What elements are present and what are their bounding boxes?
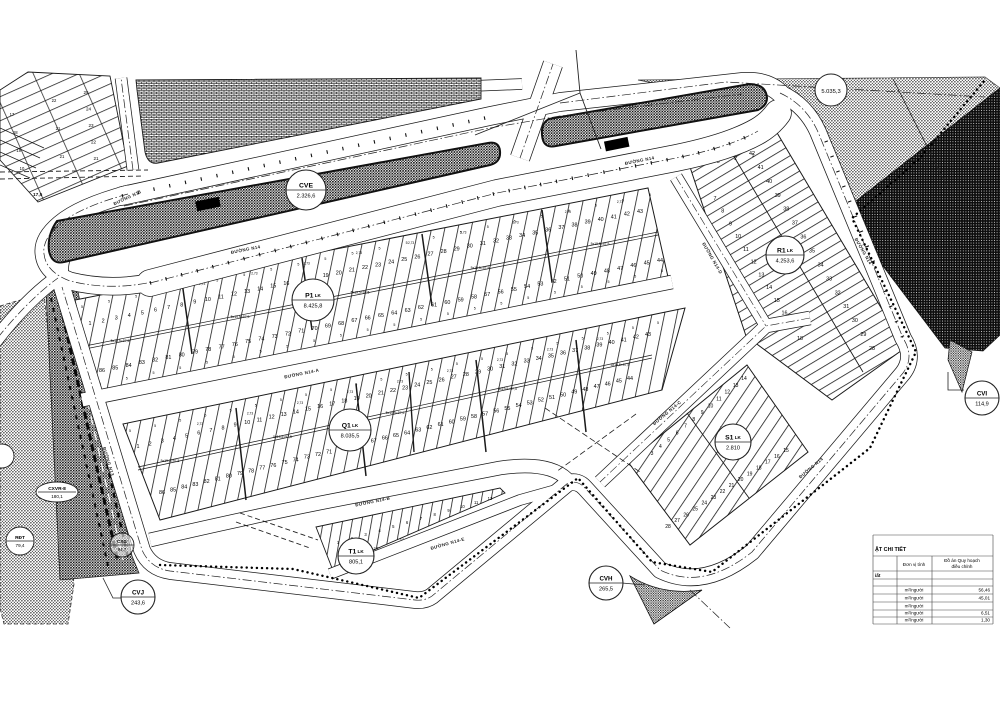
svg-text:RĐT: RĐT (15, 535, 25, 541)
svg-text:37: 37 (792, 221, 798, 227)
svg-text:35: 35 (809, 249, 815, 255)
svg-text:40: 40 (598, 217, 604, 223)
svg-text:22: 22 (52, 98, 57, 103)
svg-text:5: 5 (270, 268, 272, 272)
svg-text:1: 1 (89, 321, 92, 327)
svg-text:ỉất: ỉất (875, 572, 881, 578)
svg-text:5: 5 (447, 312, 449, 316)
svg-text:điều chỉnh: điều chỉnh (952, 563, 973, 569)
svg-text:13: 13 (758, 272, 764, 278)
svg-text:41: 41 (611, 214, 617, 220)
svg-text:9: 9 (729, 222, 732, 228)
svg-text:31: 31 (480, 241, 486, 247)
svg-text:5: 5 (607, 331, 609, 335)
svg-text:51: 51 (564, 276, 570, 282)
svg-text:23: 23 (88, 123, 94, 128)
svg-text:5: 5 (431, 367, 433, 371)
svg-text:71: 71 (326, 449, 332, 455)
svg-text:5: 5 (204, 414, 206, 418)
svg-text:61: 61 (438, 422, 444, 428)
svg-text:2,73: 2,73 (297, 401, 303, 405)
svg-text:45: 45 (616, 379, 622, 385)
svg-text:33: 33 (524, 359, 530, 365)
svg-text:29: 29 (860, 332, 866, 338)
svg-text:73: 73 (272, 334, 278, 340)
svg-text:38: 38 (783, 207, 789, 213)
svg-text:6: 6 (676, 431, 679, 437)
svg-text:5: 5 (632, 326, 634, 330)
svg-text:12: 12 (725, 390, 731, 396)
svg-text:20: 20 (366, 393, 372, 399)
svg-text:5: 5 (233, 355, 235, 359)
svg-text:2.326,6: 2.326,6 (297, 194, 316, 200)
svg-text:55: 55 (504, 406, 510, 412)
svg-text:78: 78 (205, 347, 211, 353)
svg-text:13: 13 (733, 383, 739, 389)
svg-text:5: 5 (154, 424, 156, 428)
svg-text:53: 53 (537, 282, 543, 288)
svg-text:5: 5 (582, 336, 584, 340)
svg-text:44: 44 (627, 376, 633, 382)
svg-text:29: 29 (454, 246, 460, 252)
svg-text:5: 5 (556, 342, 558, 346)
svg-text:5: 5 (634, 274, 636, 278)
svg-text:2: 2 (734, 156, 737, 162)
svg-text:19: 19 (323, 273, 329, 279)
svg-text:28: 28 (869, 346, 875, 352)
svg-text:2,73: 2,73 (547, 348, 553, 352)
svg-text:5: 5 (129, 429, 131, 433)
svg-text:15: 15 (783, 448, 789, 454)
svg-text:11: 11 (218, 294, 224, 300)
svg-text:5: 5 (380, 378, 382, 382)
svg-text:24: 24 (86, 107, 92, 112)
svg-text:2,73: 2,73 (597, 337, 603, 341)
svg-text:43: 43 (637, 209, 643, 215)
svg-text:10: 10 (205, 297, 211, 303)
svg-text:14: 14 (293, 409, 299, 415)
svg-text:16: 16 (283, 281, 289, 287)
svg-text:16: 16 (317, 404, 323, 410)
svg-text:75: 75 (282, 460, 288, 466)
svg-text:10: 10 (708, 403, 714, 409)
svg-text:23: 23 (375, 262, 381, 268)
svg-text:32: 32 (835, 290, 841, 296)
svg-text:2,73: 2,73 (460, 231, 466, 235)
svg-text:50: 50 (560, 392, 566, 398)
svg-text:5: 5 (657, 321, 659, 325)
svg-text:CXG: CXG (117, 539, 127, 544)
svg-text:5x19,5=97,5: 5x19,5=97,5 (161, 459, 180, 463)
svg-text:2,73: 2,73 (397, 380, 403, 384)
svg-text:42: 42 (633, 335, 639, 341)
svg-text:5: 5 (554, 291, 556, 295)
svg-text:14: 14 (257, 286, 263, 292)
svg-text:26: 26 (414, 254, 420, 260)
svg-text:12: 12 (231, 292, 237, 298)
svg-text:43: 43 (645, 332, 651, 338)
svg-text:17: 17 (10, 112, 15, 117)
svg-text:5: 5 (527, 296, 529, 300)
svg-text:265,5: 265,5 (599, 587, 613, 593)
svg-text:CXVR-8: CXVR-8 (48, 486, 66, 492)
svg-text:5: 5 (506, 352, 508, 356)
svg-text:62: 62 (426, 425, 432, 431)
svg-text:CVI: CVI (977, 391, 988, 398)
svg-text:5: 5 (135, 294, 137, 298)
svg-text:5x19,5=97,5: 5x19,5=97,5 (231, 315, 250, 319)
svg-text:24: 24 (414, 383, 420, 389)
svg-text:5: 5 (474, 307, 476, 311)
svg-text:14: 14 (741, 376, 747, 382)
svg-text:30: 30 (467, 244, 473, 250)
svg-text:12: 12 (751, 260, 757, 266)
svg-text:79,4: 79,4 (16, 543, 25, 548)
svg-text:10: 10 (244, 420, 250, 426)
svg-text:5: 5 (280, 398, 282, 402)
svg-text:25: 25 (426, 380, 432, 386)
svg-text:114,9: 114,9 (975, 402, 989, 408)
svg-text:7: 7 (684, 424, 687, 430)
svg-text:5: 5 (481, 357, 483, 361)
svg-text:5: 5 (179, 419, 181, 423)
svg-text:46: 46 (630, 263, 636, 269)
svg-text:27: 27 (674, 518, 680, 524)
svg-text:74: 74 (293, 457, 299, 463)
svg-text:5: 5 (313, 339, 315, 343)
svg-text:58: 58 (471, 414, 477, 420)
svg-text:84: 84 (126, 363, 132, 369)
svg-text:5: 5 (255, 403, 257, 407)
svg-text:28: 28 (665, 524, 671, 530)
svg-text:24: 24 (388, 260, 394, 266)
svg-text:5.035,3: 5.035,3 (821, 89, 840, 95)
svg-text:7: 7 (167, 305, 170, 311)
svg-text:25: 25 (401, 257, 407, 263)
svg-text:48: 48 (582, 387, 588, 393)
svg-text:80: 80 (226, 474, 232, 480)
svg-text:26: 26 (683, 512, 689, 518)
svg-text:39: 39 (585, 220, 591, 226)
svg-text:8: 8 (692, 417, 695, 423)
svg-text:7: 7 (209, 428, 212, 434)
svg-text:76: 76 (232, 342, 238, 348)
svg-text:5: 5 (500, 301, 502, 305)
svg-text:36: 36 (545, 228, 551, 234)
svg-text:24: 24 (702, 501, 708, 507)
svg-text:45: 45 (644, 261, 650, 267)
svg-text:5x19,5=97,5: 5x19,5=97,5 (351, 291, 370, 295)
svg-text:18: 18 (797, 336, 803, 342)
svg-text:31: 31 (843, 304, 849, 310)
svg-text:21: 21 (349, 268, 355, 274)
svg-text:25: 25 (692, 507, 698, 513)
svg-text:2,73: 2,73 (497, 358, 503, 362)
svg-text:5: 5 (126, 377, 128, 381)
svg-text:81: 81 (165, 355, 171, 361)
svg-text:4: 4 (128, 313, 131, 319)
svg-text:15: 15 (774, 298, 780, 304)
svg-text:5: 5 (286, 344, 288, 348)
svg-text:5: 5 (667, 437, 670, 443)
svg-text:2,73: 2,73 (565, 210, 571, 214)
svg-text:m²/người: m²/người (905, 611, 924, 616)
svg-text:62: 62 (418, 305, 424, 311)
svg-text:52: 52 (538, 398, 544, 404)
svg-text:Đơn vị tính: Đơn vị tính (903, 562, 926, 567)
svg-text:3: 3 (161, 439, 164, 445)
svg-text:66: 66 (365, 316, 371, 322)
svg-text:5: 5 (153, 371, 155, 375)
svg-text:59: 59 (460, 417, 466, 423)
svg-text:2,73: 2,73 (356, 251, 362, 255)
svg-text:5: 5 (340, 334, 342, 338)
svg-text:60: 60 (444, 300, 450, 306)
svg-text:5: 5 (649, 193, 651, 197)
svg-text:m²/người: m²/người (905, 618, 924, 623)
svg-text:6,51: 6,51 (981, 611, 990, 616)
svg-text:82: 82 (152, 358, 158, 364)
svg-text:3: 3 (115, 316, 118, 322)
svg-text:17,5: 17,5 (33, 192, 43, 198)
svg-text:67: 67 (351, 318, 357, 324)
svg-text:63: 63 (415, 428, 421, 434)
svg-text:4: 4 (173, 436, 176, 442)
svg-text:81: 81 (215, 476, 221, 482)
svg-text:5: 5 (297, 262, 299, 266)
svg-text:39: 39 (775, 193, 781, 199)
svg-text:83: 83 (139, 360, 145, 366)
svg-text:58: 58 (471, 295, 477, 301)
svg-text:28: 28 (463, 372, 469, 378)
svg-text:14: 14 (766, 285, 772, 291)
svg-text:ẬT CHI TIẾT: ẬT CHI TIẾT (875, 546, 907, 553)
svg-text:6: 6 (154, 308, 157, 314)
svg-text:23: 23 (402, 385, 408, 391)
svg-text:38: 38 (572, 222, 578, 228)
svg-text:12: 12 (488, 496, 493, 501)
svg-text:5: 5 (487, 225, 489, 229)
svg-text:22: 22 (362, 265, 368, 271)
svg-text:2: 2 (149, 441, 152, 447)
svg-text:5x19,5=97,5: 5x19,5=97,5 (111, 339, 130, 343)
svg-text:11: 11 (257, 417, 263, 423)
svg-text:5x19,5=97,5: 5x19,5=97,5 (591, 242, 610, 246)
svg-text:80: 80 (179, 352, 185, 358)
svg-text:47: 47 (594, 384, 600, 390)
svg-text:47: 47 (617, 266, 623, 272)
svg-text:94,7: 94,7 (118, 547, 127, 552)
svg-text:2,73: 2,73 (251, 272, 257, 276)
svg-text:84: 84 (181, 485, 187, 491)
svg-text:5: 5 (367, 328, 369, 332)
svg-text:69: 69 (325, 324, 331, 330)
svg-text:2,73: 2,73 (247, 411, 253, 415)
svg-text:35: 35 (532, 230, 538, 236)
svg-text:180,1: 180,1 (51, 494, 63, 499)
svg-text:1: 1 (137, 444, 140, 450)
svg-text:41: 41 (621, 337, 627, 343)
svg-text:54: 54 (524, 284, 530, 290)
svg-text:38: 38 (584, 345, 590, 351)
svg-text:85: 85 (170, 487, 176, 493)
svg-text:45,01: 45,01 (979, 596, 991, 601)
svg-text:5x19,5=97,5: 5x19,5=97,5 (611, 363, 630, 367)
svg-text:17: 17 (765, 460, 771, 466)
svg-text:21: 21 (93, 156, 99, 161)
svg-text:8: 8 (721, 209, 724, 215)
svg-text:5: 5 (379, 246, 381, 250)
svg-text:5: 5 (393, 323, 395, 327)
svg-text:57: 57 (484, 292, 490, 298)
svg-text:21: 21 (729, 483, 735, 489)
svg-text:77: 77 (259, 466, 265, 472)
svg-text:79: 79 (237, 471, 243, 477)
svg-text:86: 86 (159, 490, 165, 496)
svg-text:11: 11 (716, 397, 721, 403)
svg-text:8.425,8: 8.425,8 (304, 304, 323, 310)
svg-text:22: 22 (390, 388, 396, 394)
svg-text:5x19,5=97,5: 5x19,5=97,5 (273, 435, 292, 439)
svg-text:5: 5 (661, 269, 663, 273)
svg-text:20: 20 (336, 270, 342, 276)
svg-text:5: 5 (206, 361, 208, 365)
svg-text:20: 20 (738, 477, 744, 483)
svg-text:CVE: CVE (299, 183, 313, 190)
svg-text:36: 36 (560, 351, 566, 357)
svg-text:57: 57 (482, 411, 488, 417)
svg-text:35: 35 (548, 353, 554, 359)
svg-text:26: 26 (439, 377, 445, 383)
svg-text:50: 50 (577, 274, 583, 280)
svg-text:78: 78 (248, 468, 254, 474)
svg-text:12: 12 (269, 415, 275, 421)
svg-text:64: 64 (391, 310, 397, 316)
svg-text:68: 68 (338, 321, 344, 327)
svg-text:2,73: 2,73 (197, 422, 203, 426)
svg-text:2,73: 2,73 (512, 220, 518, 224)
svg-text:Đồ án Quy hoạch: Đồ án Quy hoạch (944, 558, 980, 563)
svg-text:56,46: 56,46 (979, 588, 991, 593)
svg-text:5: 5 (595, 204, 597, 208)
svg-text:18: 18 (756, 466, 762, 472)
svg-text:5: 5 (185, 433, 188, 439)
svg-text:2,73: 2,73 (304, 261, 310, 265)
svg-text:67: 67 (371, 438, 377, 444)
svg-text:19: 19 (747, 471, 753, 477)
svg-text:55: 55 (511, 287, 517, 293)
svg-text:5: 5 (531, 347, 533, 351)
svg-text:42: 42 (624, 212, 630, 218)
svg-text:5: 5 (581, 285, 583, 289)
svg-text:5: 5 (260, 350, 262, 354)
svg-text:5x19,5=97,5: 5x19,5=97,5 (498, 387, 517, 391)
svg-text:40: 40 (766, 179, 772, 185)
svg-text:64: 64 (404, 430, 410, 436)
svg-text:66: 66 (382, 436, 388, 442)
svg-text:4.253,6: 4.253,6 (776, 259, 795, 265)
svg-text:74: 74 (258, 337, 264, 343)
svg-text:243,6: 243,6 (131, 601, 145, 607)
svg-text:49: 49 (591, 271, 597, 277)
svg-text:1: 1 (752, 153, 755, 159)
svg-text:86: 86 (99, 368, 105, 374)
svg-text:49: 49 (571, 390, 577, 396)
svg-text:56: 56 (498, 289, 504, 295)
svg-text:13: 13 (281, 412, 287, 418)
svg-text:65: 65 (378, 313, 384, 319)
svg-text:33: 33 (506, 236, 512, 242)
svg-text:2.810: 2.810 (726, 446, 740, 452)
svg-text:32: 32 (493, 238, 499, 244)
svg-text:m²/người: m²/người (905, 596, 924, 601)
svg-text:72: 72 (285, 331, 291, 337)
svg-text:5: 5 (456, 362, 458, 366)
svg-text:73: 73 (304, 455, 310, 461)
svg-text:19: 19 (354, 396, 360, 402)
svg-text:33: 33 (826, 276, 832, 282)
svg-text:5: 5 (433, 236, 435, 240)
svg-text:23: 23 (711, 495, 717, 501)
svg-text:2: 2 (102, 318, 105, 324)
svg-text:8: 8 (180, 302, 183, 308)
svg-text:59: 59 (458, 297, 464, 303)
svg-text:11: 11 (743, 247, 749, 253)
svg-text:46: 46 (605, 381, 611, 387)
svg-text:5x19,5=97,5: 5x19,5=97,5 (471, 266, 490, 270)
svg-text:9: 9 (234, 423, 237, 429)
svg-text:9: 9 (701, 410, 704, 416)
svg-text:71: 71 (298, 329, 304, 335)
svg-text:7: 7 (714, 196, 717, 202)
svg-text:2,73: 2,73 (447, 369, 453, 373)
svg-text:63: 63 (405, 308, 411, 314)
svg-text:76: 76 (270, 463, 276, 469)
svg-text:5: 5 (330, 388, 332, 392)
svg-text:85: 85 (112, 365, 118, 371)
svg-text:5: 5 (230, 408, 232, 412)
svg-text:5: 5 (420, 317, 422, 321)
svg-text:21: 21 (56, 126, 61, 131)
svg-text:5: 5 (179, 366, 181, 370)
svg-text:51: 51 (549, 395, 555, 401)
svg-text:37: 37 (558, 225, 564, 231)
svg-text:72: 72 (315, 452, 321, 458)
svg-text:34: 34 (536, 356, 542, 362)
svg-text:32: 32 (511, 361, 517, 367)
svg-text:5: 5 (352, 252, 354, 256)
svg-text:2,73: 2,73 (408, 241, 414, 245)
svg-text:54: 54 (516, 403, 522, 409)
svg-text:5: 5 (324, 257, 326, 261)
svg-text:10: 10 (460, 504, 465, 509)
svg-text:30: 30 (487, 367, 493, 373)
svg-text:10: 10 (735, 234, 741, 240)
svg-text:1,30: 1,30 (981, 618, 990, 623)
svg-text:34: 34 (818, 262, 824, 268)
svg-text:15: 15 (305, 407, 311, 413)
svg-text:21: 21 (60, 154, 65, 159)
svg-text:41: 41 (758, 165, 764, 171)
svg-text:6: 6 (197, 431, 200, 437)
svg-text:79: 79 (192, 350, 198, 356)
svg-text:31: 31 (499, 364, 505, 370)
svg-text:5: 5 (141, 310, 144, 316)
svg-text:27: 27 (428, 252, 434, 258)
svg-text:44: 44 (657, 258, 663, 264)
svg-text:22: 22 (91, 140, 97, 145)
svg-text:5: 5 (406, 372, 408, 376)
